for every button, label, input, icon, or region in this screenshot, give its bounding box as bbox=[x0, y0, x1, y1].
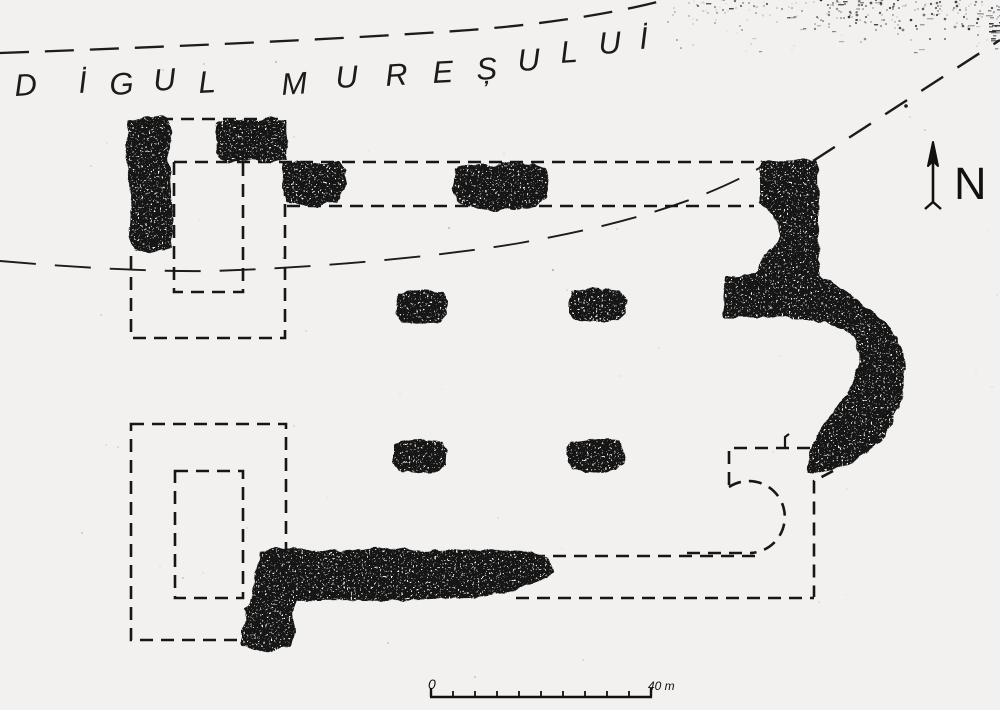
svg-text:U: U bbox=[152, 61, 177, 98]
svg-text:U: U bbox=[517, 42, 542, 78]
svg-text:R: R bbox=[384, 57, 409, 93]
svg-text:E: E bbox=[432, 54, 455, 90]
svg-text:M: M bbox=[280, 65, 308, 102]
svg-text:N: N bbox=[954, 158, 987, 209]
svg-text:0: 0 bbox=[428, 676, 436, 692]
svg-text:G: G bbox=[109, 66, 135, 102]
svg-text:U: U bbox=[335, 59, 360, 95]
svg-text:L: L bbox=[559, 34, 579, 70]
svg-text:L: L bbox=[198, 64, 217, 100]
svg-text:Ș: Ș bbox=[475, 51, 498, 87]
svg-text:U: U bbox=[598, 25, 623, 61]
svg-text:40 m: 40 m bbox=[648, 679, 675, 693]
svg-text:D: D bbox=[14, 67, 38, 103]
